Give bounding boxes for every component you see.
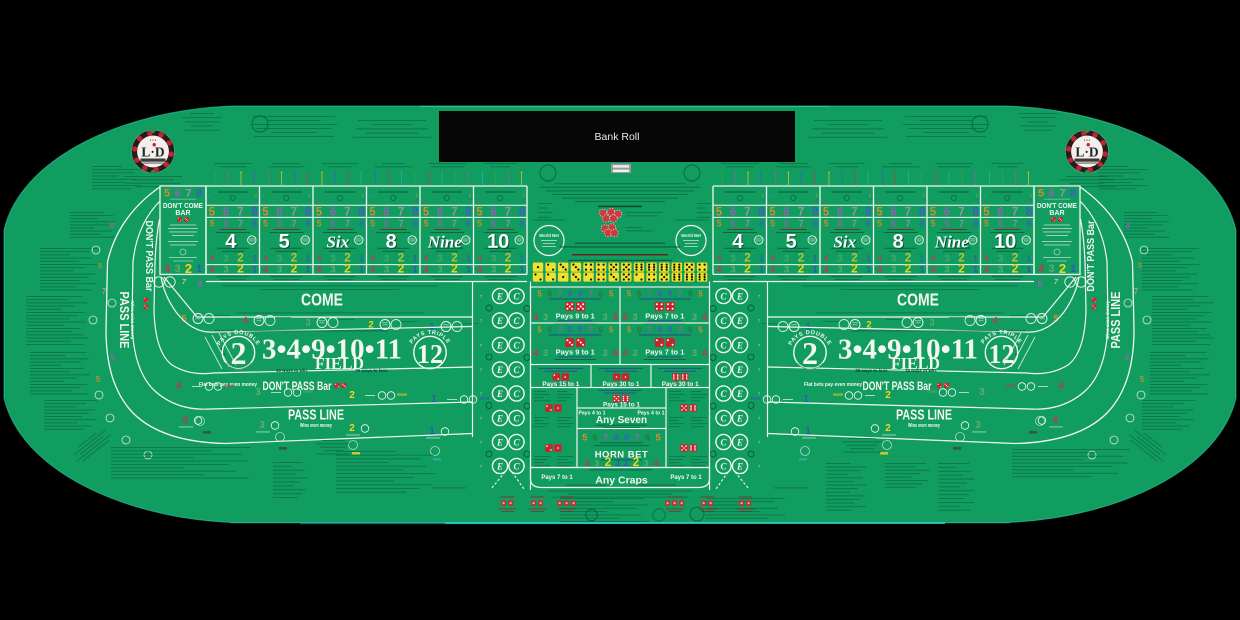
svg-text:2: 2 [349, 390, 355, 401]
svg-text:Wins even money: Wins even money [130, 301, 135, 340]
svg-text:2: 2 [398, 262, 405, 276]
svg-text:3: 3 [837, 254, 842, 265]
svg-text:E: E [736, 292, 743, 302]
svg-text:6: 6 [998, 219, 1003, 229]
svg-text:6: 6 [490, 207, 496, 219]
svg-text:8: 8 [923, 198, 925, 202]
svg-text:2: 2 [451, 262, 458, 276]
svg-text:1: 1 [973, 265, 979, 276]
svg-text:Pays 9 to 1: Pays 9 to 1 [556, 348, 595, 357]
svg-text:6: 6 [944, 207, 950, 219]
svg-text:5: 5 [209, 207, 216, 219]
svg-text:7: 7 [647, 290, 651, 299]
svg-text:5: 5 [609, 290, 614, 299]
svg-text:26 ways to lose.: 26 ways to lose. [355, 368, 388, 373]
svg-text:C: C [720, 341, 727, 351]
svg-text:6: 6 [330, 207, 336, 219]
svg-text:7: 7 [1059, 188, 1065, 200]
svg-text:PASS LINE: PASS LINE [1108, 291, 1123, 348]
svg-text:1: 1 [477, 198, 479, 202]
svg-text:6: 6 [784, 219, 789, 229]
svg-text:8: 8 [759, 219, 764, 229]
svg-text:6: 6 [548, 326, 553, 335]
svg-text:6: 6 [276, 207, 282, 219]
svg-text:7: 7 [588, 290, 592, 299]
svg-text:4: 4 [1058, 381, 1064, 392]
svg-text:DON'T PASS Bar: DON'T PASS Bar [863, 379, 932, 393]
svg-text:2: 2 [905, 262, 912, 276]
svg-text:8: 8 [309, 198, 311, 202]
svg-text:5: 5 [770, 219, 775, 229]
svg-text:7: 7 [398, 207, 404, 219]
svg-text:7: 7 [238, 219, 243, 229]
svg-text:1: 1 [803, 394, 809, 405]
svg-text:6: 6 [1048, 188, 1054, 200]
svg-text:1: 1 [423, 198, 425, 202]
svg-text:E: E [496, 365, 503, 375]
svg-text:6: 6 [997, 207, 1003, 219]
svg-text:3: 3 [891, 254, 896, 265]
svg-text:1: 1 [1070, 263, 1076, 275]
svg-text:E: E [736, 438, 743, 448]
svg-text:♦ ♦ ♦: ♦ ♦ ♦ [150, 138, 157, 142]
svg-text:C: C [513, 341, 520, 351]
svg-text:8: 8 [198, 279, 203, 289]
svg-text:4: 4 [654, 458, 659, 468]
svg-text:4: 4 [823, 265, 829, 276]
svg-text:4: 4 [423, 265, 429, 276]
svg-text:5: 5 [786, 231, 797, 253]
svg-text:8: 8 [658, 290, 663, 299]
svg-text:BAR: BAR [175, 210, 190, 217]
svg-text:5: 5 [716, 219, 721, 229]
svg-text:E: E [496, 414, 503, 424]
svg-text:6: 6 [437, 219, 442, 229]
svg-text:6: 6 [599, 326, 604, 335]
svg-text:3: 3 [491, 254, 496, 265]
svg-text:4: 4 [209, 265, 215, 276]
svg-text:1: 1 [759, 265, 765, 276]
svg-text:DON'T PASS Bar: DON'T PASS Bar [263, 379, 332, 393]
svg-text:7: 7 [505, 207, 511, 219]
svg-text:6: 6 [637, 290, 642, 299]
svg-text:7: 7 [603, 433, 608, 444]
svg-text:5: 5 [656, 433, 662, 444]
svg-text:2: 2 [958, 262, 965, 276]
svg-text:E: E [496, 438, 503, 448]
svg-text:BAR: BAR [1049, 210, 1064, 217]
svg-text:1: 1 [1026, 254, 1032, 265]
svg-text:4: 4 [585, 458, 590, 468]
svg-text:4: 4 [732, 231, 744, 253]
svg-text:6: 6 [491, 219, 496, 229]
svg-text:8: 8 [519, 207, 526, 219]
svg-text:5: 5 [1038, 188, 1044, 200]
svg-text:3: 3 [602, 312, 607, 323]
svg-text:7: 7 [102, 287, 107, 296]
svg-text:DON'T COME: DON'T COME [1037, 203, 1077, 210]
svg-text:1: 1 [431, 394, 437, 405]
svg-text:Bank Roll: Bank Roll [595, 131, 640, 143]
svg-text:8: 8 [305, 219, 310, 229]
svg-text:5: 5 [370, 219, 375, 229]
svg-text:2: 2 [744, 262, 751, 276]
svg-text:4: 4 [242, 316, 248, 327]
svg-text:2: 2 [231, 335, 247, 371]
svg-text:2: 2 [349, 423, 355, 434]
svg-text:7: 7 [185, 188, 191, 200]
svg-text:7: 7 [1012, 207, 1018, 219]
svg-text:6: 6 [548, 290, 553, 299]
svg-text:4: 4 [1038, 263, 1045, 275]
svg-text:E: E [736, 316, 743, 326]
svg-text:3: 3 [259, 420, 265, 431]
svg-text:6: 6 [437, 207, 443, 219]
svg-text:5: 5 [698, 326, 703, 335]
svg-text:1: 1 [429, 426, 435, 437]
svg-text:3: 3 [491, 265, 496, 276]
svg-text:6: 6 [890, 207, 896, 219]
svg-text:8: 8 [359, 219, 364, 229]
svg-text:2: 2 [185, 261, 192, 276]
svg-text:2: 2 [885, 390, 891, 401]
svg-text:7: 7 [1012, 219, 1017, 229]
svg-text:8: 8 [1026, 207, 1033, 219]
svg-text:E: E [736, 341, 743, 351]
svg-text:8: 8 [869, 198, 871, 202]
svg-text:3: 3 [632, 348, 637, 359]
svg-text:3: 3 [255, 387, 261, 398]
svg-text:4: 4 [316, 265, 322, 276]
svg-text:C: C [513, 462, 520, 472]
svg-text:6: 6 [837, 207, 843, 219]
svg-text:C: C [513, 316, 520, 326]
svg-text:1: 1 [812, 265, 818, 276]
svg-text:1: 1 [263, 198, 265, 202]
svg-text:4: 4 [622, 348, 628, 359]
svg-text:5: 5 [930, 207, 937, 219]
svg-text:2: 2 [802, 335, 818, 371]
svg-text:3: 3 [784, 265, 789, 276]
svg-text:C: C [720, 462, 727, 472]
svg-text:E: E [496, 341, 503, 351]
svg-text:7: 7 [745, 219, 750, 229]
svg-text:1: 1 [973, 254, 979, 265]
svg-text:6: 6 [174, 188, 180, 200]
svg-text:2: 2 [1012, 262, 1019, 276]
svg-text:5: 5 [423, 219, 428, 229]
svg-text:1: 1 [316, 198, 318, 202]
svg-text:6: 6 [223, 207, 229, 219]
svg-text:4: 4 [176, 381, 182, 392]
svg-text:Wins even money: Wins even money [1105, 300, 1110, 339]
svg-text:4: 4 [823, 254, 829, 265]
svg-text:7: 7 [237, 207, 243, 219]
svg-text:4: 4 [612, 348, 618, 359]
svg-text:E: E [496, 292, 503, 302]
svg-text:4: 4 [612, 312, 618, 323]
svg-text:6: 6 [730, 219, 735, 229]
svg-text:5: 5 [477, 219, 482, 229]
svg-text:7: 7 [635, 433, 640, 444]
svg-text:6: 6 [891, 219, 896, 229]
svg-text:5: 5 [582, 433, 588, 444]
svg-text:3: 3 [174, 263, 180, 275]
svg-text:3: 3 [837, 265, 842, 276]
svg-text:2: 2 [851, 262, 858, 276]
svg-text:8: 8 [658, 326, 663, 335]
svg-text:3: 3 [1048, 263, 1054, 275]
svg-text:6: 6 [1125, 353, 1130, 362]
svg-text:C: C [720, 316, 727, 326]
svg-text:1: 1 [770, 198, 772, 202]
svg-text:5: 5 [1138, 263, 1142, 270]
svg-text:2: 2 [291, 262, 298, 276]
svg-text:Pays 7 to 1: Pays 7 to 1 [645, 348, 684, 357]
svg-text:3: 3 [784, 254, 789, 265]
svg-text:C: C [720, 365, 727, 375]
svg-text:8: 8 [919, 219, 924, 229]
svg-text:8: 8 [668, 326, 673, 335]
svg-text:8: 8 [466, 219, 471, 229]
svg-text:7: 7 [678, 290, 682, 299]
svg-text:1: 1 [1026, 265, 1032, 276]
svg-text:3: 3 [644, 458, 649, 468]
svg-text:6: 6 [688, 326, 693, 335]
svg-text:8: 8 [358, 207, 365, 219]
svg-text:4: 4 [702, 348, 708, 359]
svg-text:1: 1 [359, 254, 365, 265]
svg-text:4: 4 [716, 265, 722, 276]
svg-text:7: 7 [905, 207, 911, 219]
svg-text:3: 3 [730, 254, 735, 265]
svg-text:6: 6 [111, 353, 116, 362]
svg-text:5: 5 [876, 207, 883, 219]
svg-text:7: 7 [505, 219, 510, 229]
svg-text:4: 4 [622, 312, 628, 323]
svg-text:E: E [736, 462, 743, 472]
svg-text:8: 8 [893, 231, 904, 253]
svg-text:3: 3 [730, 265, 735, 276]
svg-text:5: 5 [369, 207, 376, 219]
svg-text:1: 1 [823, 198, 825, 202]
svg-text:1: 1 [519, 265, 525, 276]
svg-text:7: 7 [588, 326, 592, 335]
svg-text:1: 1 [359, 265, 365, 276]
svg-text:5: 5 [262, 207, 269, 219]
svg-text:6: 6 [783, 207, 789, 219]
svg-text:8: 8 [305, 207, 312, 219]
svg-text:3: 3 [437, 265, 442, 276]
svg-text:4: 4 [182, 415, 188, 426]
svg-text:3: 3 [998, 254, 1003, 265]
svg-text:1: 1 [209, 198, 211, 202]
svg-text:4: 4 [770, 254, 776, 265]
svg-text:3: 3 [602, 348, 607, 359]
svg-text:8: 8 [973, 219, 978, 229]
svg-text:5: 5 [627, 326, 632, 335]
svg-text:2: 2 [344, 262, 351, 276]
svg-text:2: 2 [1059, 261, 1066, 276]
svg-text:5: 5 [423, 207, 430, 219]
svg-text:1: 1 [305, 265, 311, 276]
svg-text:16 ways to win.: 16 ways to win. [905, 368, 937, 373]
svg-text:C: C [513, 292, 520, 302]
svg-text:4: 4 [370, 265, 376, 276]
svg-text:E: E [736, 389, 743, 399]
svg-text:5: 5 [209, 219, 214, 229]
svg-text:1: 1 [412, 254, 418, 265]
svg-text:8: 8 [624, 433, 629, 444]
svg-text:5: 5 [96, 375, 101, 384]
svg-text:5: 5 [609, 326, 614, 335]
svg-text:4: 4 [423, 254, 429, 265]
svg-text:1: 1 [919, 254, 925, 265]
svg-text:3: 3 [305, 318, 310, 329]
svg-text:3: 3 [543, 348, 548, 359]
svg-text:8: 8 [412, 207, 419, 219]
svg-text:2: 2 [237, 262, 244, 276]
svg-text:1: 1 [759, 254, 765, 265]
svg-text:8: 8 [578, 290, 583, 299]
svg-text:8: 8 [110, 221, 115, 230]
svg-text:8: 8 [972, 207, 979, 219]
svg-text:8: 8 [568, 326, 573, 335]
svg-text:5: 5 [698, 290, 703, 299]
svg-text:6: 6 [837, 219, 842, 229]
svg-text:6: 6 [223, 219, 228, 229]
svg-text:1: 1 [252, 254, 258, 265]
svg-text:E: E [736, 414, 743, 424]
svg-text:5: 5 [1140, 375, 1145, 384]
svg-text:1: 1 [919, 265, 925, 276]
svg-text:4: 4 [263, 265, 269, 276]
svg-text:3: 3 [384, 265, 389, 276]
svg-text:6: 6 [277, 219, 282, 229]
svg-text:4: 4 [533, 348, 539, 359]
svg-text:4: 4 [477, 265, 483, 276]
svg-text:Pays 9 to 1: Pays 9 to 1 [556, 312, 595, 321]
svg-text:5: 5 [537, 290, 542, 299]
svg-text:E: E [496, 316, 503, 326]
svg-text:5: 5 [263, 219, 268, 229]
svg-text:E: E [496, 462, 503, 472]
svg-text:PASS LINE: PASS LINE [896, 407, 952, 424]
svg-text:3: 3 [944, 254, 949, 265]
svg-text:1: 1 [716, 198, 718, 202]
svg-text:8: 8 [919, 207, 926, 219]
svg-text:5: 5 [627, 290, 632, 299]
svg-text:7: 7 [291, 219, 296, 229]
svg-text:3: 3 [277, 265, 282, 276]
svg-text:8: 8 [519, 219, 524, 229]
svg-text:4: 4 [164, 263, 171, 275]
svg-text:DON'T PASS Bar: DON'T PASS Bar [1085, 221, 1097, 292]
svg-text:1: 1 [466, 265, 472, 276]
svg-text:7: 7 [558, 326, 562, 335]
svg-text:Pays 7 to 1: Pays 7 to 1 [670, 475, 702, 481]
svg-text:3: 3 [979, 387, 985, 398]
svg-text:6: 6 [730, 207, 736, 219]
svg-text:26 ways to lose.: 26 ways to lose. [855, 368, 888, 373]
svg-text:1: 1 [370, 198, 372, 202]
svg-text:5: 5 [930, 219, 935, 229]
svg-text:4: 4 [984, 265, 990, 276]
svg-text:C: C [513, 365, 520, 375]
svg-text:World Bet: World Bet [681, 233, 701, 238]
svg-text:7: 7 [344, 207, 350, 219]
svg-text:5: 5 [537, 326, 542, 335]
svg-text:Wins even money: Wins even money [908, 423, 940, 429]
svg-text:6: 6 [383, 207, 389, 219]
svg-text:7: 7 [852, 219, 857, 229]
svg-text:8: 8 [251, 207, 258, 219]
svg-text:♦ ♦ ♦: ♦ ♦ ♦ [1084, 138, 1091, 142]
svg-text:7: 7 [647, 326, 651, 335]
svg-text:12: 12 [417, 339, 443, 369]
svg-text:C: C [513, 389, 520, 399]
svg-text:3: 3 [998, 265, 1003, 276]
svg-text:6: 6 [645, 433, 650, 444]
svg-text:C: C [720, 389, 727, 399]
svg-text:2: 2 [505, 262, 512, 276]
svg-text:7: 7 [958, 207, 964, 219]
svg-text:5: 5 [983, 207, 990, 219]
svg-text:4: 4 [225, 231, 237, 253]
svg-text:4: 4 [770, 265, 776, 276]
svg-text:5: 5 [877, 219, 882, 229]
svg-text:PASS LINE: PASS LINE [117, 292, 132, 349]
svg-text:3: 3 [384, 254, 389, 265]
svg-text:5: 5 [769, 207, 776, 219]
svg-text:DON'T PASS Bar: DON'T PASS Bar [143, 221, 155, 292]
svg-text:4: 4 [1052, 415, 1058, 426]
svg-text:8: 8 [252, 219, 257, 229]
svg-text:4: 4 [992, 316, 998, 327]
svg-text:7: 7 [798, 207, 804, 219]
svg-text:HORN BET: HORN BET [595, 450, 649, 461]
svg-text:8: 8 [469, 198, 471, 202]
svg-text:8: 8 [568, 290, 573, 299]
svg-text:1: 1 [196, 263, 202, 275]
svg-text:8: 8 [416, 198, 418, 202]
svg-text:E: E [496, 389, 503, 399]
svg-text:4: 4 [370, 254, 376, 265]
svg-text:5: 5 [316, 219, 321, 229]
svg-text:1: 1 [866, 265, 872, 276]
svg-text:1: 1 [252, 265, 258, 276]
svg-text:7: 7 [451, 207, 457, 219]
svg-text:7: 7 [678, 326, 682, 335]
svg-text:5: 5 [984, 219, 989, 229]
svg-text:4: 4 [263, 254, 269, 265]
svg-text:7: 7 [345, 219, 350, 229]
svg-text:C: C [720, 438, 727, 448]
svg-text:7: 7 [744, 207, 750, 219]
svg-text:1: 1 [877, 198, 879, 202]
svg-text:1: 1 [984, 198, 986, 202]
svg-text:5: 5 [164, 188, 170, 200]
svg-text:4: 4 [930, 254, 936, 265]
svg-text:8: 8 [866, 219, 871, 229]
svg-text:8: 8 [386, 231, 397, 253]
svg-text:8: 8 [578, 326, 583, 335]
svg-text:8: 8 [465, 207, 472, 219]
svg-text:8: 8 [816, 198, 818, 202]
svg-text:C: C [720, 292, 727, 302]
svg-text:16 ways to win.: 16 ways to win. [276, 368, 308, 373]
svg-text:4: 4 [877, 254, 883, 265]
